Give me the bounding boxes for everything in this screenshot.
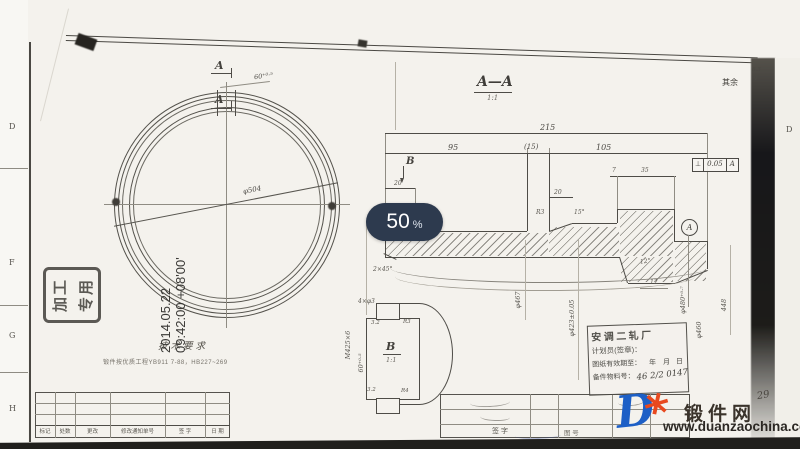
section-arrow-top-line [211, 73, 232, 74]
revision-label-date: 日 期 [205, 427, 230, 435]
revision-table-hline [35, 403, 230, 404]
detail-label-underline [383, 354, 401, 355]
dim-fillet-r3: R3 [536, 209, 544, 216]
dim-taper-12: 12 [650, 279, 658, 286]
outline-block-right-face [674, 209, 675, 241]
detail-roughness-bottom: 3.2 [367, 387, 376, 393]
watermark-site-url: www.duanzaochina.com [663, 419, 800, 434]
section-title: A—A [477, 74, 513, 90]
vdim-423: φ423±0.05 [568, 300, 576, 337]
datum-label: A [687, 223, 693, 232]
detail-thread-dim: M425×6 [344, 331, 352, 360]
detail-ext-line [366, 220, 367, 315]
machining-stamp-row1: 加工 [49, 278, 70, 312]
plan-stamp-factory: 安调二轧厂 [591, 325, 683, 343]
section-arrow-label-top: A [215, 59, 224, 72]
roughness-symbol-icon: ∇ [753, 73, 758, 82]
fold-extension-line [395, 62, 396, 130]
section-arrow-label-bottom: A [215, 93, 224, 106]
datum-leader [688, 235, 689, 307]
dim-total-length: 215 [540, 123, 555, 132]
dim-step-7: 7 [612, 167, 616, 174]
plan-stamp-day: 日 [676, 358, 683, 365]
ring-stain-dot-right [328, 202, 336, 210]
section-title-underline [474, 92, 512, 93]
detail-arrow-line [403, 166, 404, 178]
top-edge-notch [357, 39, 367, 47]
zone-letter-h-left: H [9, 404, 16, 413]
detail-bottom-tab [376, 398, 400, 414]
detail-label: B [386, 340, 395, 353]
revision-label-count: 处数 [55, 427, 75, 435]
zone-letter-f-left: F [9, 258, 15, 267]
dim-line-20-left [385, 188, 415, 189]
paper-crease-line [40, 8, 69, 121]
tolerance-value: 0.05 [704, 159, 727, 171]
zone-letter-d-left: D [9, 122, 15, 131]
dim-right-length: 105 [596, 143, 611, 152]
title-block-sign-label: 签 字 [492, 426, 508, 436]
vdim-ext-line-3 [730, 245, 731, 335]
ring-slot-wall-right [235, 90, 236, 116]
ring-centerline-v [226, 82, 227, 328]
outline-flange-top [674, 241, 707, 242]
revision-label-change: 更改 [75, 427, 110, 435]
dim-angle-15: 15° [574, 209, 585, 216]
detail-top-tab [376, 303, 400, 320]
plan-stamp-validity: 图纸有效期至： [592, 360, 641, 369]
signature-timestamp: 2014.05.22 09:42:00 +08'00' [158, 223, 188, 353]
signature-date: 2014.05.22 [158, 223, 173, 353]
detail-scale: 1:1 [386, 356, 396, 364]
ext-step35 [674, 176, 675, 209]
revision-table-labels: 标记 处数 更改 修改通知单号 签 字 日 期 [35, 427, 230, 435]
plan-stamp-material-value: 46 2/2 0147 [636, 367, 688, 382]
title-block-drawing-no-label: 图 号 [564, 427, 579, 437]
detail-roughness-top: 3.2 [371, 320, 380, 326]
section-scale: 1:1 [487, 94, 498, 102]
ext-step7 [617, 176, 618, 209]
vdim-ext-line [525, 240, 526, 320]
ring-slot-dim-line [220, 81, 270, 88]
vdim-467: φ467 [514, 292, 522, 309]
plan-stamp-planner: 计划员(签章)： [592, 342, 684, 356]
sheet-left-border [29, 42, 31, 442]
revision-label-mark: 标记 [35, 427, 55, 435]
detail-arrow-label: B [406, 156, 414, 167]
roughness-prefix: 其余 [722, 78, 738, 87]
dim-chamfer: 2×45° [373, 266, 392, 273]
dim-line-95 [385, 153, 527, 154]
dim-line-215 [385, 133, 707, 134]
tolerance-symbol: ⊥ [693, 159, 704, 171]
revision-label-notice: 修改通知单号 [110, 427, 165, 435]
vdim-480: φ480⁺⁰·⁷ [679, 286, 687, 314]
paper-left-margin [0, 0, 28, 449]
zone-letter-d-right: D [786, 125, 792, 134]
dim-line-20-ramp [549, 197, 573, 198]
farside-curve-2 [395, 262, 695, 291]
outline-step-7 [617, 209, 618, 223]
tolerance-datum: A [727, 159, 738, 171]
dim-ramp-20: 20 [554, 189, 562, 196]
scanned-drawing-page: D F G H D 其余 6.3 ∇ φ504 A A 60⁺⁰·⁵ [0, 0, 800, 449]
datum-target: A [681, 219, 698, 236]
zoom-level-badge[interactable]: 50 % [366, 203, 443, 241]
ring-stain-dot-left [112, 198, 120, 206]
dim-step-35: 35 [641, 167, 649, 174]
section-arrow-bottom-tick [231, 101, 232, 111]
detail-radius-top: R3 [403, 319, 411, 325]
zone-tick [0, 168, 28, 169]
plan-stamp-material-label: 备件物料号： [593, 373, 635, 381]
zone-tick [0, 305, 28, 306]
detail-width-dim: 60⁺⁰·⁵ [357, 354, 365, 373]
ext-right [707, 133, 708, 241]
revision-label-sign: 签 字 [165, 427, 205, 435]
outline-flange-right-face [707, 241, 708, 269]
section-arrow-top-tick [231, 68, 232, 78]
dim-line-105 [549, 153, 707, 154]
vdim-ext-line-2 [578, 240, 579, 380]
dim-line-12 [640, 288, 668, 289]
dim-line-15 [527, 153, 549, 154]
tech-requirements-line: 锻件按优质工程YB911 7-88，HB227~269 [103, 357, 228, 366]
outline-top-mid [572, 223, 617, 224]
section-arrow-bottom-line [211, 108, 232, 109]
dim-left-length: 95 [448, 143, 458, 152]
right-scan-band [751, 58, 775, 440]
zoom-level-unit: % [413, 219, 423, 231]
handwritten-page-number: 29 [756, 389, 770, 402]
plan-stamp-year: 年 [649, 359, 656, 366]
outline-top-block [617, 209, 674, 210]
detail-radius-bottom: R4 [401, 388, 409, 394]
revision-table-hline [35, 425, 230, 426]
outline-slot-wall-l [527, 152, 528, 231]
general-roughness-note: 其余 6.3 ∇ [722, 72, 738, 90]
vdim-448: 448 [720, 299, 728, 311]
sheet-top-border [66, 35, 758, 63]
title-block-vline [558, 394, 559, 438]
zone-tick [0, 372, 28, 373]
revision-table-hline [35, 414, 230, 415]
right-paper-strip [775, 58, 800, 440]
signature-time: 09:42:00 +08'00' [173, 223, 188, 353]
machining-stamp-row2: 专用 [75, 278, 96, 312]
vdim-460: φ460 [695, 322, 703, 339]
title-block-vline [612, 394, 613, 438]
tolerance-frame: ⊥ 0.05 A [692, 158, 739, 172]
detail-arrow-head [400, 178, 404, 183]
zone-letter-g-left: G [9, 331, 15, 340]
outline-slot-wall-r [549, 152, 550, 231]
dim-line-7-35 [610, 176, 676, 177]
plan-stamp-month: 月 [663, 359, 670, 366]
zoom-level-value: 50 [386, 210, 409, 234]
dim-angle-12: 12° [640, 257, 652, 265]
bottom-scan-strip [0, 437, 800, 449]
machining-stamp: 加工 专用 [43, 267, 101, 323]
ring-slot-width-dim: 60⁺⁰·⁵ [254, 71, 274, 82]
section-hatch-midblock [620, 211, 673, 256]
dim-slot-length: (15) [524, 143, 538, 151]
